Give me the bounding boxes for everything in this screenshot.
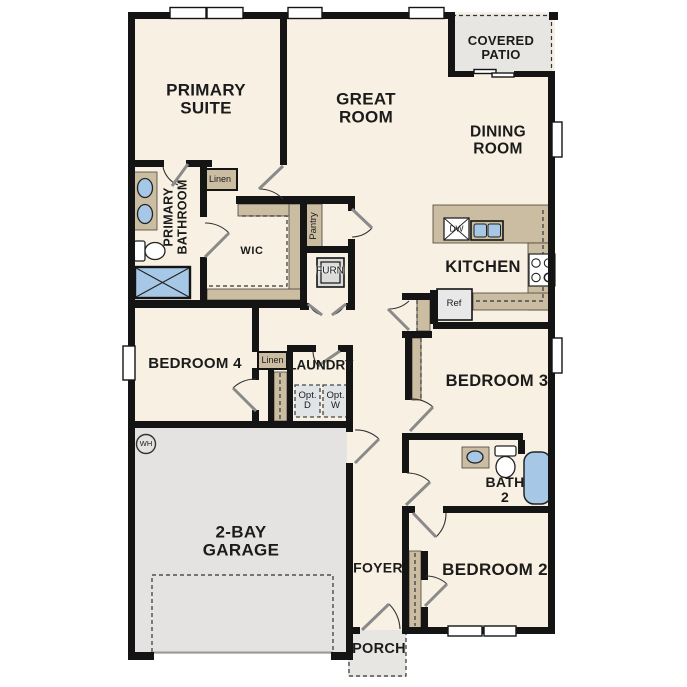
room-label-primary-suite: PRIMARY SUITE	[166, 82, 246, 119]
bathtub-icon	[524, 452, 551, 504]
label-pantry: Pantry	[309, 212, 319, 239]
window	[207, 8, 243, 19]
vanity-sink-icon	[138, 205, 153, 224]
label-refrigerator: Ref	[447, 299, 462, 309]
vanity-sink-icon	[138, 179, 153, 198]
room-label-garage: 2-BAY GARAGE	[203, 524, 279, 561]
window	[552, 122, 562, 157]
label-water-heater: WH	[140, 440, 153, 448]
room-label-bedroom-2: BEDROOM 2	[442, 561, 548, 579]
floor-plan: PRIMARY SUITE GREAT ROOM DINING ROOM COV…	[0, 0, 687, 687]
room-label-bath-2: BATH 2	[485, 475, 524, 505]
wic-shelf-right	[289, 204, 301, 300]
room-label-porch: PORCH	[352, 642, 406, 658]
window	[288, 8, 322, 19]
label-linen-primary: Linen	[209, 175, 231, 185]
shower-icon	[135, 267, 190, 298]
room-label-foyer: FOYER	[353, 560, 403, 575]
label-dishwasher: DW	[449, 224, 463, 233]
room-label-bedroom-3: BEDROOM 3	[446, 373, 549, 391]
kitchen-sink-icon	[471, 221, 503, 240]
window	[448, 626, 482, 636]
label-linen-hall: Linen	[261, 356, 283, 366]
window	[552, 338, 562, 373]
vanity-sink-icon	[467, 451, 483, 463]
label-opt-washer: Opt. W	[327, 391, 345, 412]
room-label-great-room: GREAT ROOM	[336, 91, 396, 128]
wic-shelf-bottom	[207, 289, 301, 300]
bedroom3-closet-shelf	[412, 338, 421, 400]
window	[170, 8, 206, 19]
room-label-dining-room: DINING ROOM	[470, 124, 526, 157]
window	[409, 8, 444, 19]
room-label-wic: WIC	[240, 246, 263, 258]
window	[484, 626, 516, 636]
room-label-kitchen: KITCHEN	[445, 259, 520, 277]
patio-sliding-door	[492, 73, 514, 77]
window	[123, 346, 135, 380]
toilet-icon	[134, 241, 165, 261]
label-furnace: FURN	[316, 267, 344, 278]
label-opt-dryer: Opt. D	[299, 391, 317, 412]
room-label-bedroom-4: BEDROOM 4	[148, 356, 242, 372]
room-label-primary-bathroom: PRIMARY BATHROOM	[163, 179, 190, 254]
hall-closet-shelf	[417, 299, 430, 331]
room-label-laundry: LAUNDRY	[288, 359, 354, 374]
room-label-covered-patio: COVERED PATIO	[468, 34, 534, 62]
toilet-icon	[495, 446, 516, 478]
